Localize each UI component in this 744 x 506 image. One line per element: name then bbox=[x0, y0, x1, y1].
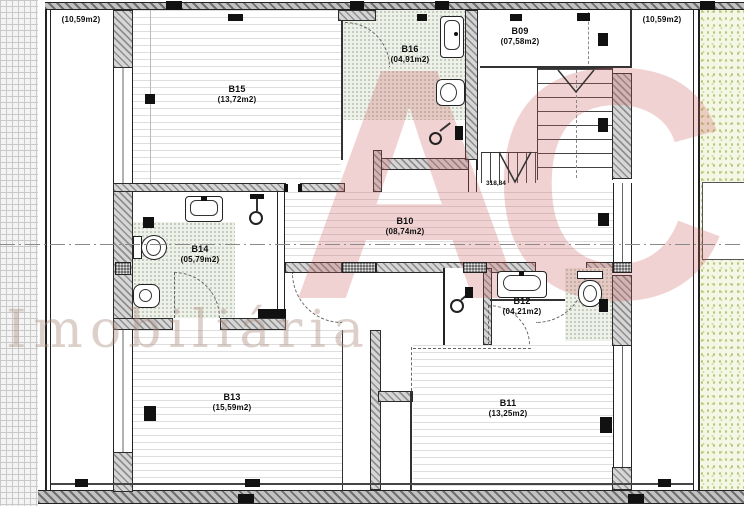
door-leaf bbox=[284, 184, 288, 192]
column-marker bbox=[577, 13, 590, 21]
column-marker bbox=[658, 479, 671, 487]
room-b13-label: B13 (15,59m2) bbox=[192, 392, 272, 413]
column-marker bbox=[598, 118, 608, 132]
wall-tag bbox=[166, 1, 182, 10]
door-leaf bbox=[298, 184, 302, 192]
balcony-left-label: (10,59m2) bbox=[49, 15, 113, 25]
room-b11-label: B11 (13,25m2) bbox=[468, 398, 548, 419]
wall-right-outer bbox=[693, 10, 700, 490]
toilet-bowl bbox=[440, 83, 457, 102]
shower-head-icon bbox=[249, 211, 263, 225]
wall-tag bbox=[435, 1, 449, 10]
wall-pier bbox=[115, 262, 131, 275]
stairs-turn-arrow bbox=[497, 150, 533, 184]
column-marker bbox=[143, 217, 154, 228]
bidet-bowl bbox=[139, 289, 152, 302]
room-b10-label: B10 (08,74m2) bbox=[365, 216, 445, 237]
wall-tag bbox=[350, 1, 364, 10]
column-marker bbox=[417, 14, 427, 21]
wall-pier bbox=[613, 262, 632, 273]
column-marker bbox=[245, 479, 260, 487]
column-marker bbox=[145, 94, 155, 104]
toilet-tank bbox=[577, 271, 603, 279]
wall-pier bbox=[463, 262, 487, 273]
shower-stem bbox=[256, 199, 258, 211]
column-marker bbox=[510, 14, 522, 21]
door-threshold bbox=[258, 309, 286, 318]
section-line bbox=[0, 244, 744, 245]
column-marker bbox=[228, 14, 243, 21]
wall bbox=[612, 467, 632, 490]
window bbox=[113, 68, 133, 184]
room-b14-label: B14 (05,79m2) bbox=[160, 244, 240, 265]
door-leaf bbox=[455, 126, 463, 140]
column-marker bbox=[144, 406, 156, 421]
stair-level-label: 318,84 bbox=[486, 180, 520, 187]
room-b12-label: B12 (04,21m2) bbox=[484, 296, 560, 317]
floor-plan: (10,59m2) (10,59m2) B15 (13,72m2) B16 (0… bbox=[0, 0, 744, 506]
shower-knob bbox=[454, 32, 458, 36]
sink-tap bbox=[201, 196, 207, 201]
toilet-bowl bbox=[146, 239, 161, 256]
wall-tag bbox=[238, 494, 254, 503]
window-sill-line bbox=[51, 483, 693, 485]
garden-patio bbox=[702, 182, 744, 260]
shower-head-icon bbox=[450, 299, 464, 313]
column-marker bbox=[598, 33, 608, 46]
column-marker bbox=[599, 299, 608, 312]
shower-valve bbox=[465, 287, 473, 298]
column-marker bbox=[600, 417, 612, 433]
door-leaf-dashed bbox=[174, 272, 175, 318]
balcony-right-label: (10,59m2) bbox=[630, 15, 694, 25]
wall-tag bbox=[700, 1, 715, 10]
room-b09-label: B09 (07,58m2) bbox=[478, 26, 562, 47]
wall-pier bbox=[342, 262, 376, 273]
closet-dashed-line bbox=[413, 348, 531, 349]
door-leaf-dashed bbox=[411, 347, 412, 391]
column-marker bbox=[75, 479, 88, 487]
room-b15-label: B15 (13,72m2) bbox=[197, 84, 277, 105]
sink-basin bbox=[190, 200, 218, 216]
neighbor-building-texture bbox=[0, 0, 38, 506]
wall bbox=[113, 10, 133, 68]
room-b16-label: B16 (04,91m2) bbox=[375, 44, 445, 65]
wall bbox=[113, 183, 286, 192]
wall-thin bbox=[410, 391, 412, 490]
shower-head-icon bbox=[429, 132, 442, 145]
wall bbox=[113, 452, 133, 492]
toilet-bowl bbox=[583, 285, 597, 302]
sink-tap bbox=[519, 271, 524, 276]
sink-basin bbox=[503, 275, 541, 291]
wall bbox=[378, 391, 413, 402]
wall-left-outer bbox=[45, 10, 51, 490]
wall-tag bbox=[628, 494, 644, 503]
stairs-up-arrow bbox=[556, 68, 596, 94]
column-marker bbox=[598, 213, 609, 226]
